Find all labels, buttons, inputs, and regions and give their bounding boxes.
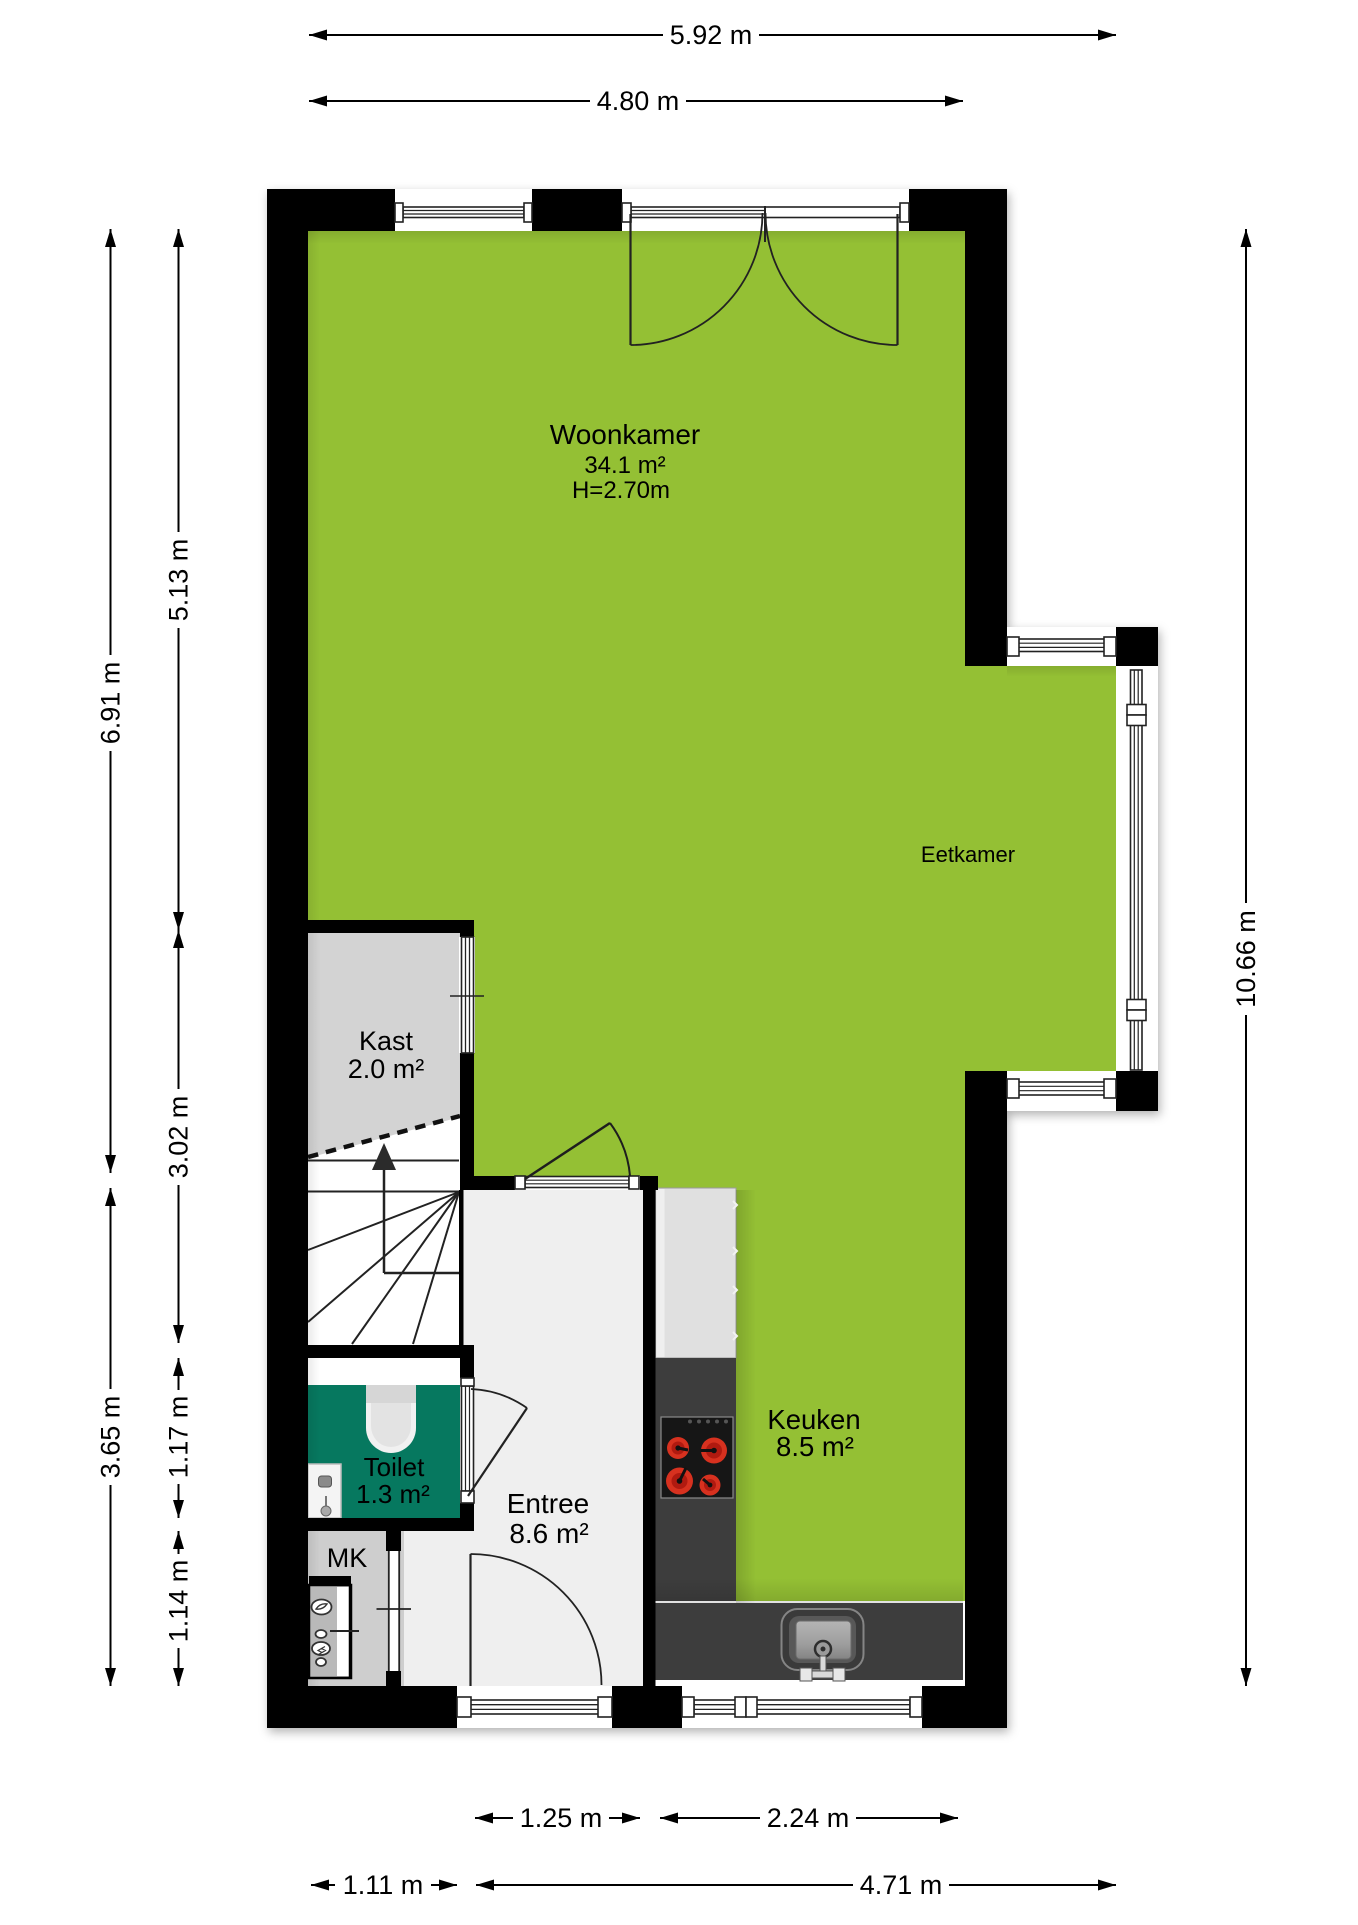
svg-text:4.80 m: 4.80 m [597,86,680,116]
svg-text:10.66 m: 10.66 m [1231,910,1261,1008]
svg-text:2.24 m: 2.24 m [767,1803,850,1833]
svg-text:1.14 m: 1.14 m [164,1560,194,1643]
svg-text:1.3 m²: 1.3 m² [356,1479,430,1509]
svg-text:8.5 m²: 8.5 m² [776,1431,854,1462]
svg-text:4.71 m: 4.71 m [860,1870,943,1900]
svg-text:MK: MK [327,1543,368,1573]
svg-text:6.91 m: 6.91 m [96,662,126,745]
svg-text:Woonkamer: Woonkamer [550,419,700,450]
svg-text:8.6 m²: 8.6 m² [509,1518,588,1549]
svg-text:3.65 m: 3.65 m [96,1396,126,1479]
svg-text:2.0 m²: 2.0 m² [348,1054,425,1084]
svg-text:5.92 m: 5.92 m [670,20,753,50]
svg-text:Kast: Kast [359,1026,414,1056]
svg-text:34.1 m²: 34.1 m² [584,452,665,479]
svg-text:1.11 m: 1.11 m [343,1870,424,1900]
svg-text:1.25 m: 1.25 m [520,1803,603,1833]
svg-text:5.13 m: 5.13 m [164,539,194,622]
svg-text:3.02 m: 3.02 m [164,1096,194,1179]
svg-text:Entree: Entree [507,1488,590,1519]
svg-text:Toilet: Toilet [364,1452,425,1482]
svg-text:Eetkamer: Eetkamer [921,842,1015,867]
svg-text:1.17 m: 1.17 m [164,1396,194,1479]
svg-text:H=2.70m: H=2.70m [572,477,670,504]
